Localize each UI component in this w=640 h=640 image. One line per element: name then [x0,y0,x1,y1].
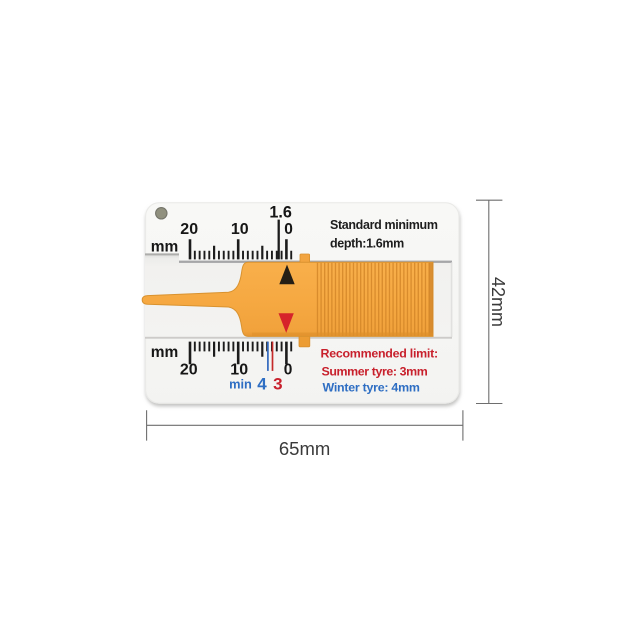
svg-text:1.6: 1.6 [269,203,292,221]
svg-text:20: 20 [180,361,198,378]
svg-text:3: 3 [273,374,282,393]
svg-text:depth:1.6mm: depth:1.6mm [330,236,404,250]
svg-text:Standard minimum: Standard minimum [330,218,438,232]
svg-text:20: 20 [180,221,198,238]
svg-text:min: min [229,377,252,392]
svg-text:42mm: 42mm [488,277,508,327]
svg-text:4: 4 [257,374,267,393]
svg-text:0: 0 [284,221,293,238]
svg-text:0: 0 [284,361,293,378]
svg-text:mm: mm [151,238,179,255]
svg-text:Summer tyre: 3mm: Summer tyre: 3mm [322,364,428,378]
svg-text:10: 10 [231,221,249,238]
svg-text:Winter tyre: 4mm: Winter tyre: 4mm [323,380,420,394]
svg-text:Recommended limit:: Recommended limit: [321,347,438,361]
svg-text:65mm: 65mm [279,438,330,459]
svg-text:mm: mm [151,344,179,361]
